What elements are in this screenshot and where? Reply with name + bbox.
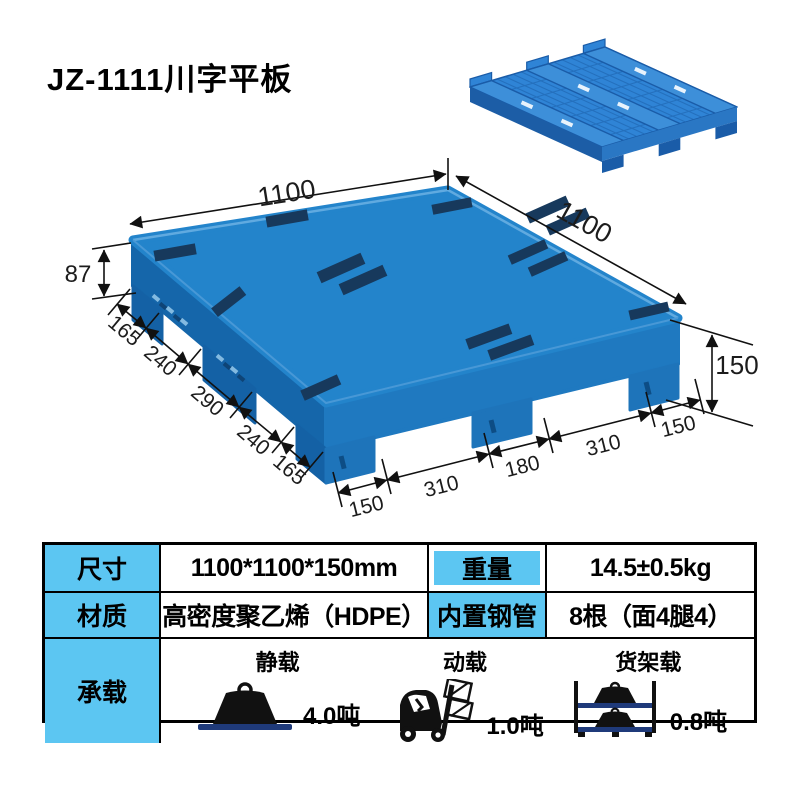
load-capacity-cell: 静载 4.0吨 动载 — [161, 639, 754, 743]
product-spec-sheet: JZ-1111川字平板 — [0, 0, 800, 800]
spec-header-load: 承载 — [45, 639, 161, 743]
dim-front-chain-4: 150 — [659, 411, 699, 442]
forklift-icon — [386, 679, 478, 743]
dim-front-chain-2: 180 — [503, 451, 543, 482]
dim-front-chain-1: 310 — [422, 471, 462, 502]
spec-header-weight: 重量 — [429, 545, 547, 593]
spec-header-dimensions: 尺寸 — [45, 545, 161, 593]
pallet-thumbnail-bottom-view — [470, 39, 737, 173]
rack-load-label: 货架载 — [570, 645, 727, 677]
dim-top-right-1100: 1100 — [552, 195, 617, 249]
rack-load-value: 0.8吨 — [670, 702, 727, 739]
rack-load-item: 货架载 — [570, 645, 727, 739]
static-load-label: 静载 — [195, 645, 360, 677]
dim-left-chain-3: 240 — [232, 420, 274, 460]
spec-header-steel-pipes: 内置钢管 — [429, 593, 547, 639]
dynamic-load-label: 动载 — [386, 645, 543, 677]
dim-top-left-1100: 1100 — [256, 174, 318, 213]
weight-icon — [195, 679, 295, 733]
dim-front-chain-3: 310 — [584, 430, 624, 461]
spec-value-material: 高密度聚乙烯（HDPE） — [161, 593, 429, 639]
static-load-value: 4.0吨 — [303, 696, 360, 733]
rack-icon — [570, 679, 662, 739]
dynamic-load-item: 动载 — [386, 645, 543, 743]
dim-total-height: 150 — [715, 350, 758, 380]
dim-deck-thickness: 87 — [65, 261, 92, 288]
dim-front-chain-0: 150 — [347, 491, 387, 522]
static-load-item: 静载 4.0吨 — [195, 645, 360, 733]
spec-value-steel-pipes: 8根（面4腿4） — [547, 593, 754, 639]
dynamic-load-value: 1.0吨 — [486, 706, 543, 743]
pallet-diagram: 1100 1100 87 150 165 240 290 240 165 150… — [0, 0, 800, 540]
spec-table: 尺寸 1100*1100*150mm 重量 14.5±0.5kg 材质 高密度聚… — [42, 542, 757, 723]
spec-header-material: 材质 — [45, 593, 161, 639]
spec-value-weight: 14.5±0.5kg — [547, 545, 754, 593]
spec-value-dimensions: 1100*1100*150mm — [161, 545, 429, 593]
dim-left-chain-1: 240 — [139, 341, 181, 381]
